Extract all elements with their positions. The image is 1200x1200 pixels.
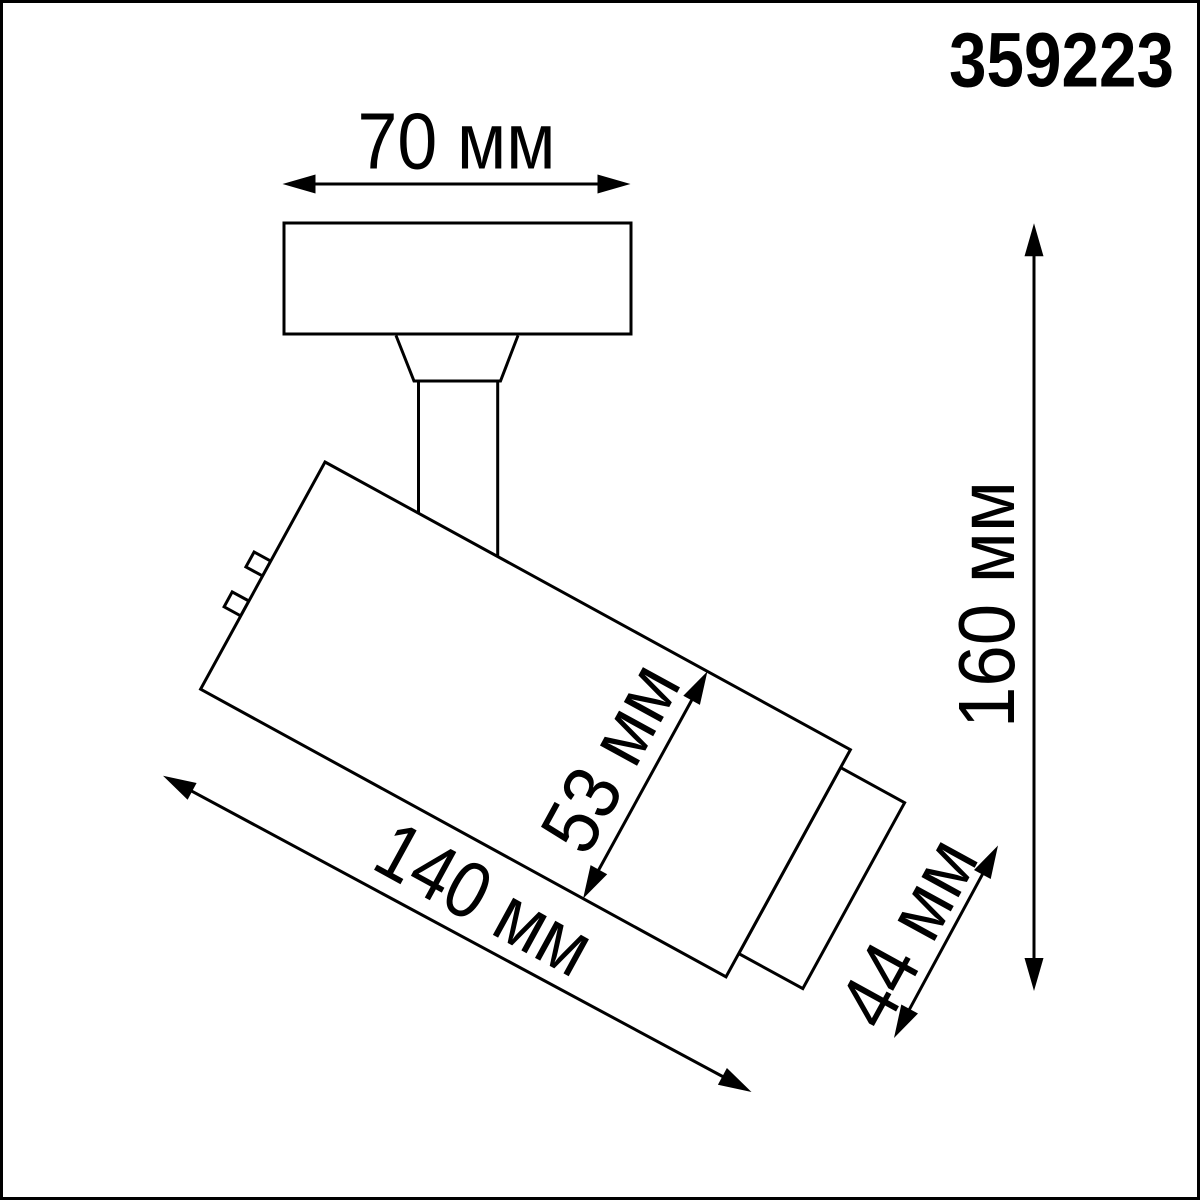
svg-text:359223: 359223 xyxy=(949,18,1174,104)
svg-text:160 мм: 160 мм xyxy=(942,481,1031,728)
svg-text:70 мм: 70 мм xyxy=(358,96,556,185)
